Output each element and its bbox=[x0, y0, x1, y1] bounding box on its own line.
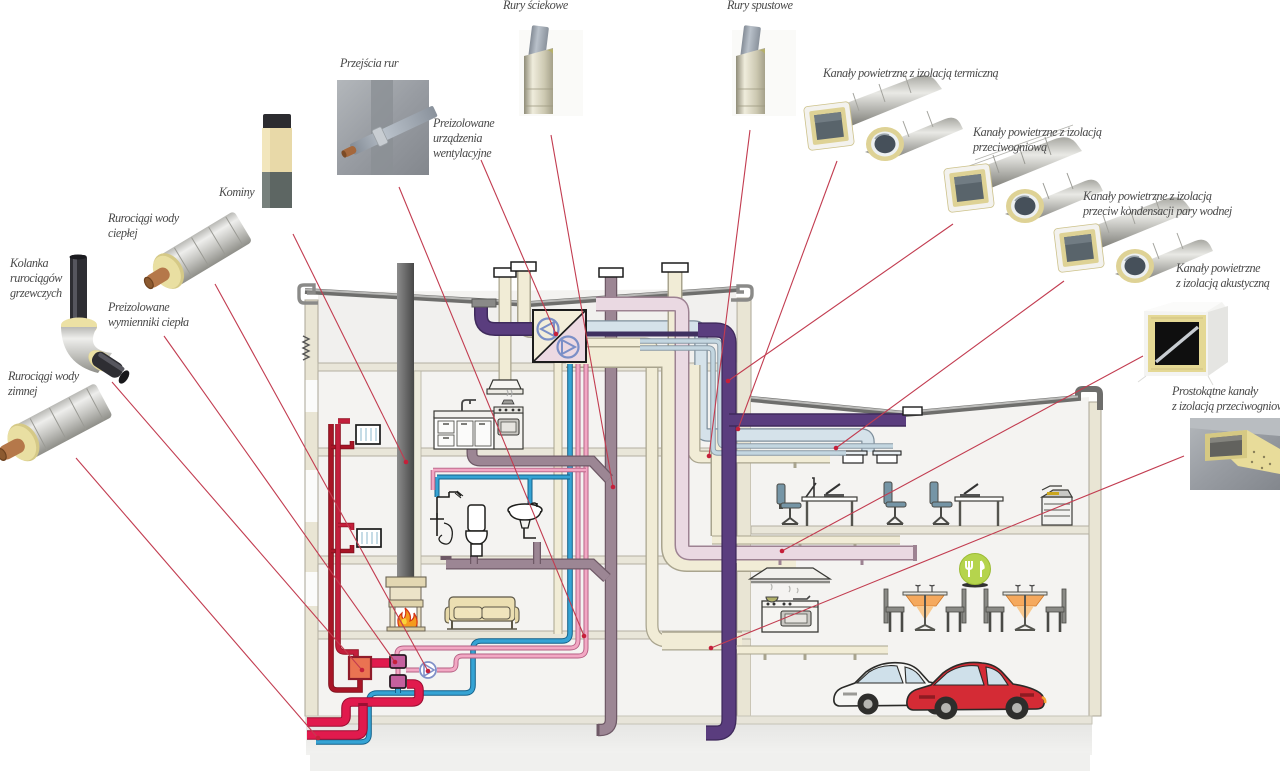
svg-text:rurociągów: rurociągów bbox=[10, 271, 63, 285]
svg-text:Kolanka: Kolanka bbox=[9, 256, 49, 270]
svg-text:Kanały powietrzne z izolacją: Kanały powietrzne z izolacją bbox=[1082, 189, 1212, 203]
svg-text:wymienniki ciepła: wymienniki ciepła bbox=[108, 315, 189, 329]
svg-text:Prostokątne kanały: Prostokątne kanały bbox=[1171, 384, 1259, 398]
svg-text:Kanały powietrzne: Kanały powietrzne bbox=[1175, 261, 1261, 275]
svg-text:Preizolowane: Preizolowane bbox=[432, 116, 495, 130]
svg-text:Przejścia rur: Przejścia rur bbox=[339, 56, 399, 70]
svg-text:przeciw kondensacji pary wodne: przeciw kondensacji pary wodnej bbox=[1082, 204, 1233, 218]
svg-text:urządzenia: urządzenia bbox=[433, 131, 482, 145]
svg-text:Rury spustowe: Rury spustowe bbox=[726, 0, 794, 12]
svg-text:Preizolowane: Preizolowane bbox=[107, 300, 170, 314]
svg-text:Rurociągi wody: Rurociągi wody bbox=[107, 211, 180, 225]
svg-text:ciepłej: ciepłej bbox=[108, 226, 138, 240]
svg-text:z izolacją akustyczną: z izolacją akustyczną bbox=[1175, 276, 1270, 290]
svg-text:Kanały powietrzne z izolacją t: Kanały powietrzne z izolacją termiczną bbox=[822, 66, 999, 80]
svg-text:zimnej: zimnej bbox=[7, 384, 38, 398]
svg-text:wentylacyjne: wentylacyjne bbox=[433, 146, 492, 160]
svg-text:z izolacją przeciwogniową: z izolacją przeciwogniową bbox=[1171, 399, 1280, 413]
svg-text:grzewczych: grzewczych bbox=[10, 286, 62, 300]
svg-text:przeciwogniową: przeciwogniową bbox=[972, 140, 1047, 154]
svg-text:Rury ściekowe: Rury ściekowe bbox=[502, 0, 569, 12]
svg-text:Kominy: Kominy bbox=[218, 185, 255, 199]
svg-text:Kanały powietrzne z izolacją: Kanały powietrzne z izolacją bbox=[972, 125, 1102, 139]
svg-text:Rurociągi wody: Rurociągi wody bbox=[7, 369, 80, 383]
